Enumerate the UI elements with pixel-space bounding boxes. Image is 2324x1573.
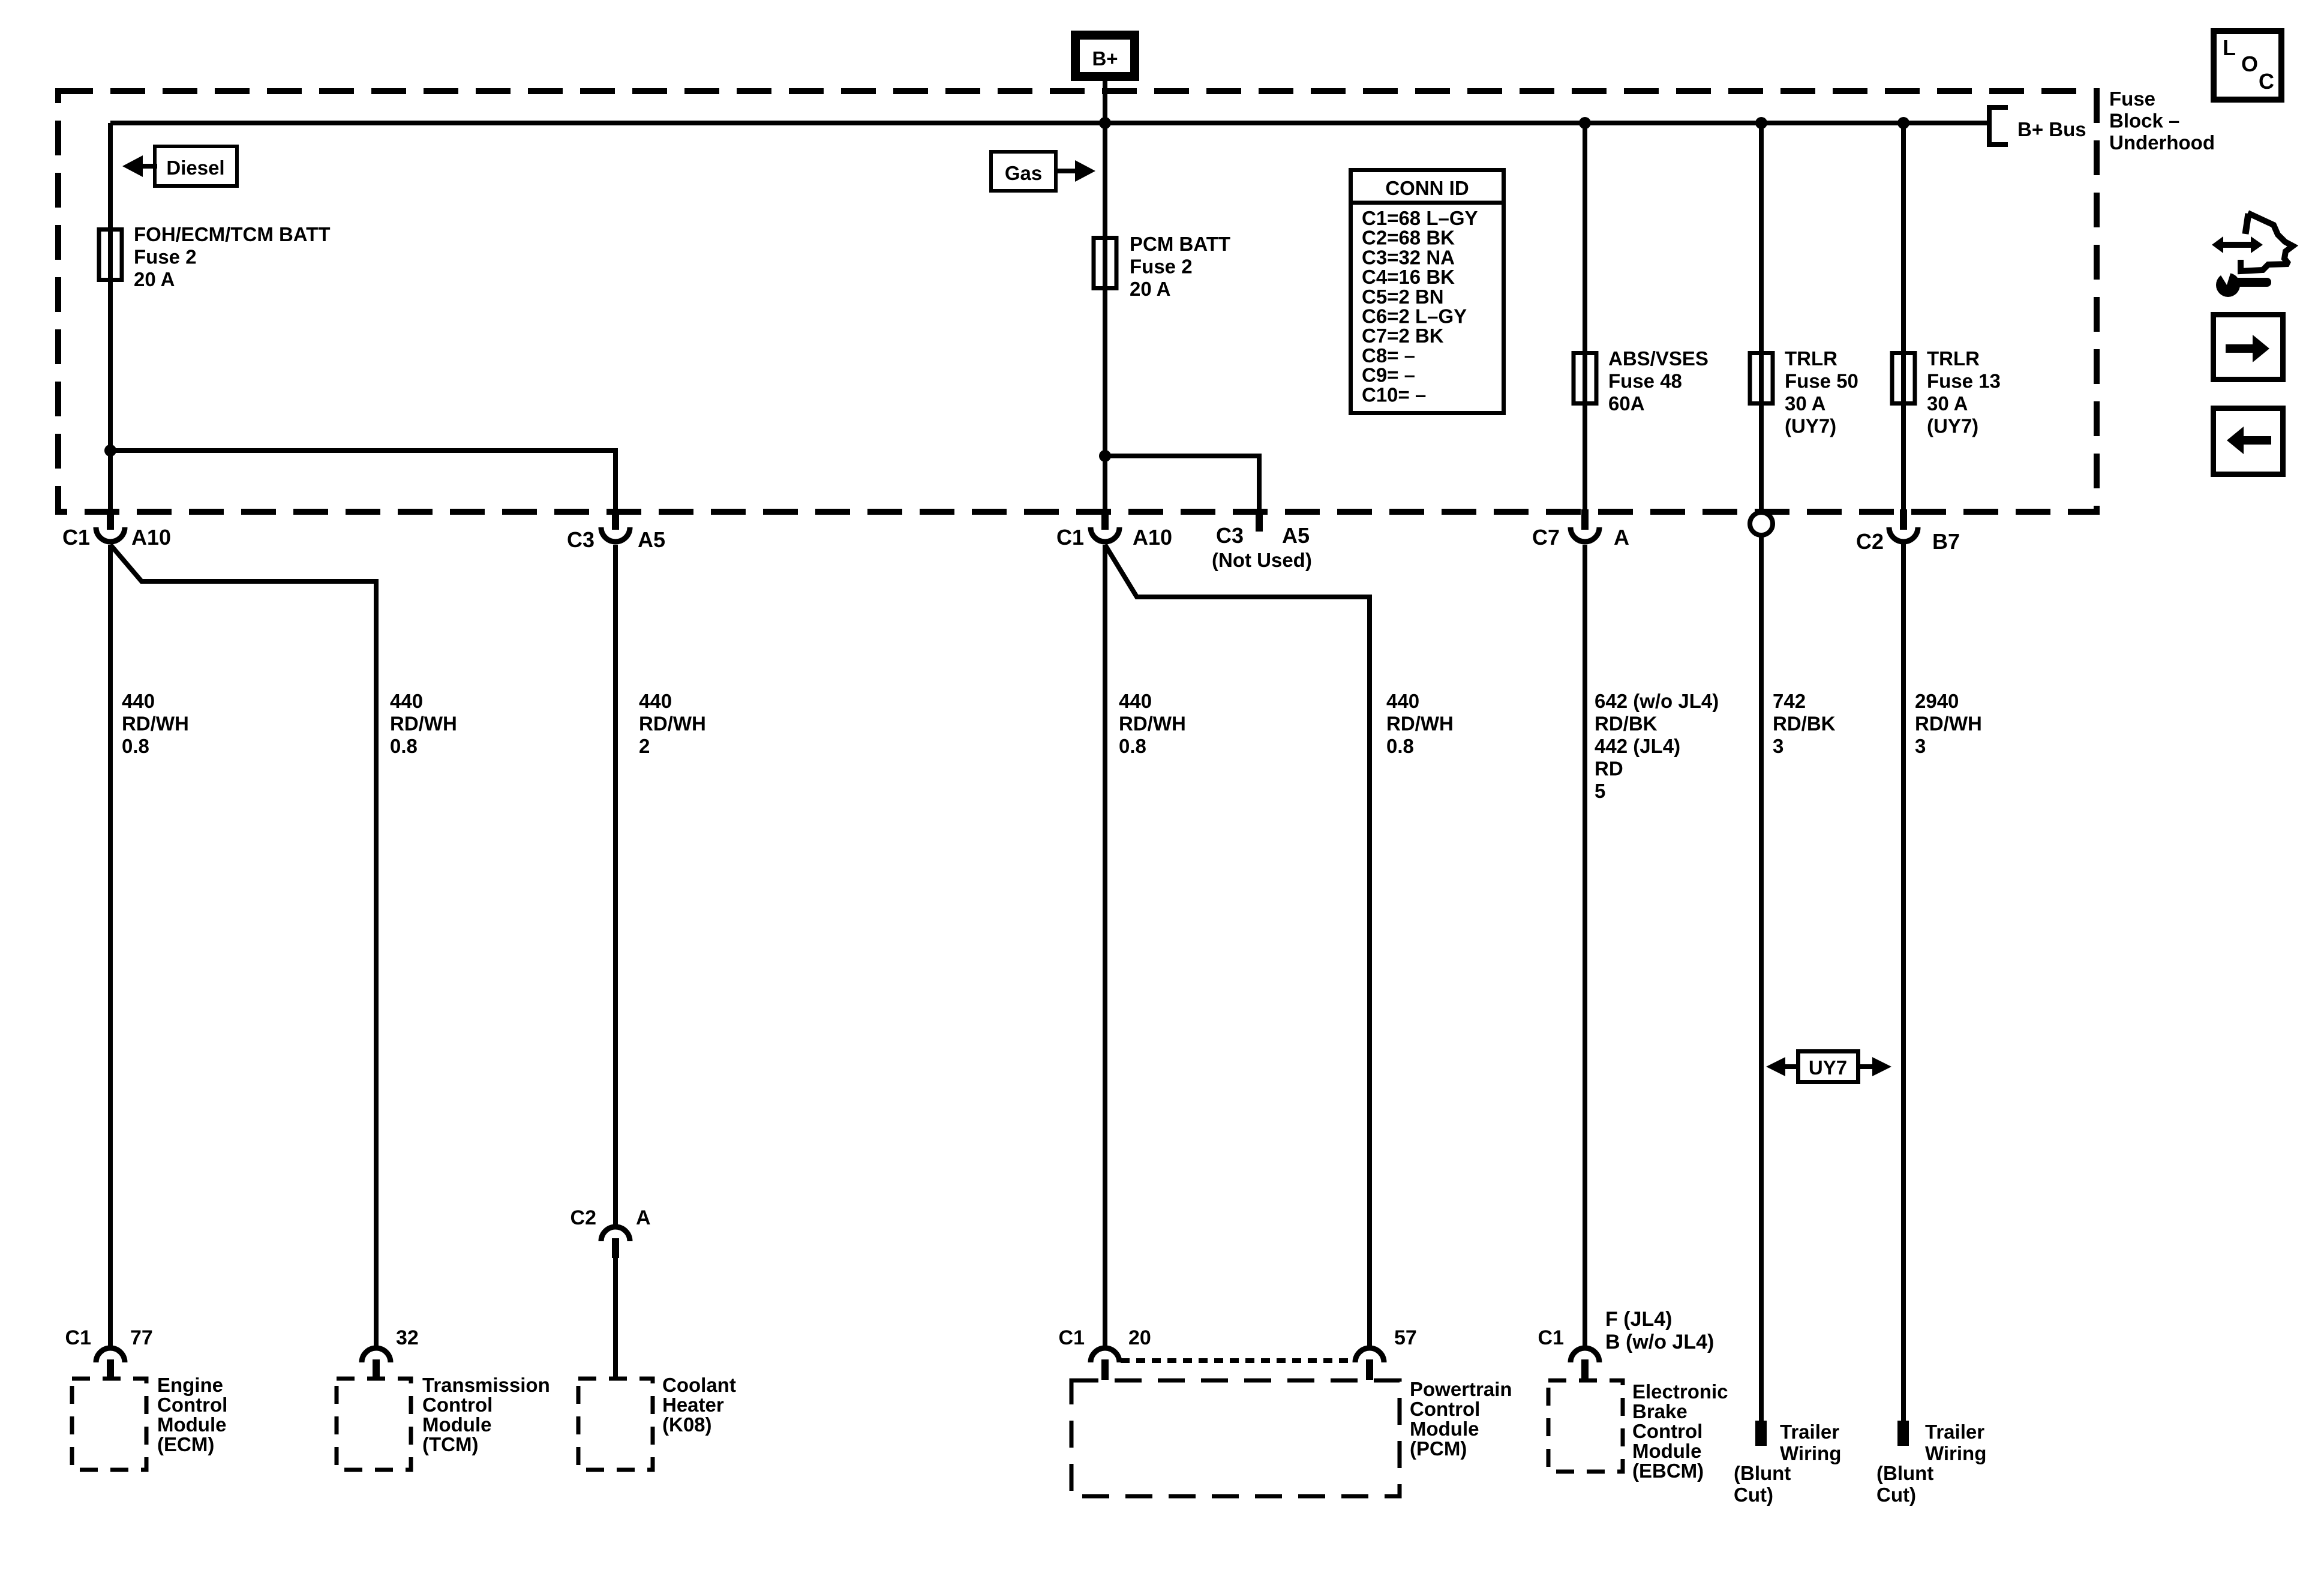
svg-text:Fuse 2: Fuse 2 [134, 246, 197, 268]
svg-text:Block –: Block – [2109, 110, 2179, 132]
svg-text:C2: C2 [571, 1206, 596, 1229]
svg-text:C9= –: C9= – [1362, 364, 1415, 386]
svg-text:440: 440 [639, 690, 672, 712]
svg-text:Module: Module [422, 1413, 491, 1436]
svg-text:3: 3 [1773, 735, 1783, 757]
svg-text:A10: A10 [1133, 525, 1172, 550]
svg-text:Trailer: Trailer [1780, 1421, 1839, 1443]
svg-text:A5: A5 [1282, 523, 1310, 548]
svg-text:RD/WH: RD/WH [1119, 713, 1186, 735]
svg-text:(EBCM): (EBCM) [1632, 1460, 1704, 1482]
svg-text:Fuse 50: Fuse 50 [1785, 370, 1858, 392]
svg-text:A: A [1614, 525, 1629, 550]
svg-text:77: 77 [130, 1326, 153, 1349]
svg-text:RD/WH: RD/WH [390, 713, 457, 735]
svg-text:F (JL4): F (JL4) [1605, 1308, 1672, 1331]
svg-text:Fuse 2: Fuse 2 [1130, 256, 1193, 278]
svg-text:Coolant: Coolant [662, 1374, 736, 1396]
svg-text:CONN ID: CONN ID [1385, 177, 1469, 199]
svg-text:Fuse 48: Fuse 48 [1608, 370, 1682, 392]
svg-text:Control: Control [1632, 1420, 1703, 1442]
svg-text:57: 57 [1394, 1326, 1417, 1349]
svg-text:UY7: UY7 [1809, 1056, 1847, 1079]
svg-text:30 A: 30 A [1927, 392, 1968, 415]
svg-text:B7: B7 [1932, 529, 1960, 554]
svg-text:Underhood: Underhood [2109, 131, 2215, 154]
svg-text:0.8: 0.8 [122, 735, 149, 757]
svg-text:C1: C1 [65, 1326, 91, 1349]
svg-text:3: 3 [1915, 735, 1926, 757]
svg-text:(PCM): (PCM) [1410, 1437, 1467, 1460]
svg-text:60A: 60A [1608, 392, 1645, 415]
svg-text:(Not Used): (Not Used) [1212, 549, 1312, 571]
svg-text:Powertrain: Powertrain [1410, 1378, 1512, 1400]
svg-text:B+ Bus: B+ Bus [2017, 118, 2086, 140]
svg-text:Brake: Brake [1632, 1400, 1688, 1422]
svg-text:20: 20 [1128, 1326, 1151, 1349]
svg-text:442 (JL4): 442 (JL4) [1595, 735, 1680, 757]
svg-text:RD/WH: RD/WH [1915, 713, 1982, 735]
svg-text:Trailer: Trailer [1925, 1421, 1984, 1443]
svg-text:Control: Control [1410, 1398, 1480, 1420]
svg-text:0.8: 0.8 [390, 735, 418, 757]
svg-text:Control: Control [422, 1394, 493, 1416]
svg-text:Cut): Cut) [1734, 1484, 1773, 1506]
svg-text:(K08): (K08) [662, 1413, 712, 1436]
svg-text:20 A: 20 A [134, 268, 175, 290]
svg-text:(TCM): (TCM) [422, 1433, 478, 1455]
svg-text:RD/BK: RD/BK [1773, 713, 1836, 735]
svg-text:440: 440 [1119, 690, 1152, 712]
svg-text:C1: C1 [1056, 525, 1084, 550]
svg-text:Fuse 13: Fuse 13 [1927, 370, 2001, 392]
svg-text:(ECM): (ECM) [157, 1433, 214, 1455]
svg-text:C6=2 L–GY: C6=2 L–GY [1362, 305, 1467, 328]
svg-text:A: A [636, 1206, 651, 1229]
svg-text:B+: B+ [1092, 47, 1118, 70]
svg-text:L: L [2223, 35, 2236, 60]
svg-text:C3: C3 [1216, 523, 1244, 548]
svg-text:Module: Module [1632, 1440, 1701, 1462]
svg-text:RD: RD [1595, 758, 1623, 780]
svg-text:C1: C1 [1538, 1326, 1564, 1349]
svg-text:FOH/ECM/TCM BATT: FOH/ECM/TCM BATT [134, 223, 331, 245]
svg-text:Control: Control [157, 1394, 227, 1416]
svg-text:C2=68 BK: C2=68 BK [1362, 227, 1455, 249]
svg-text:C1: C1 [1059, 1326, 1085, 1349]
svg-text:(Blunt: (Blunt [1734, 1462, 1791, 1484]
svg-text:RD/WH: RD/WH [122, 713, 189, 735]
svg-text:Wiring: Wiring [1925, 1442, 1986, 1464]
svg-text:C4=16 BK: C4=16 BK [1362, 266, 1455, 288]
svg-text:0.8: 0.8 [1386, 735, 1414, 757]
svg-text:C3: C3 [567, 527, 594, 552]
svg-text:(UY7): (UY7) [1785, 415, 1836, 437]
svg-text:20 A: 20 A [1130, 278, 1170, 300]
svg-text:ABS/VSES: ABS/VSES [1608, 347, 1709, 370]
svg-text:Module: Module [157, 1413, 226, 1436]
svg-text:Transmission: Transmission [422, 1374, 550, 1396]
svg-text:Wiring: Wiring [1780, 1442, 1841, 1464]
svg-text:742: 742 [1773, 690, 1806, 712]
svg-text:(Blunt: (Blunt [1876, 1462, 1933, 1484]
svg-text:440: 440 [122, 690, 155, 712]
svg-text:PCM BATT: PCM BATT [1130, 233, 1230, 255]
svg-text:32: 32 [396, 1326, 419, 1349]
svg-text:C1=68 L–GY: C1=68 L–GY [1362, 207, 1478, 229]
svg-text:C10= –: C10= – [1362, 383, 1426, 406]
svg-text:O: O [2241, 52, 2258, 76]
svg-text:5: 5 [1595, 780, 1605, 802]
svg-text:RD/BK: RD/BK [1595, 713, 1658, 735]
svg-text:2: 2 [639, 735, 650, 757]
svg-text:440: 440 [390, 690, 423, 712]
svg-text:Fuse: Fuse [2109, 88, 2155, 110]
svg-text:C8= –: C8= – [1362, 344, 1415, 367]
svg-text:2940: 2940 [1915, 690, 1959, 712]
svg-text:C5=2 BN: C5=2 BN [1362, 286, 1444, 308]
svg-text:Engine: Engine [157, 1374, 223, 1396]
svg-text:C: C [2259, 69, 2274, 94]
svg-text:Heater: Heater [662, 1394, 724, 1416]
svg-text:B (w/o JL4): B (w/o JL4) [1605, 1331, 1714, 1353]
svg-text:A5: A5 [638, 527, 665, 552]
svg-text:Cut): Cut) [1876, 1484, 1916, 1506]
svg-text:30 A: 30 A [1785, 392, 1825, 415]
svg-text:C7: C7 [1532, 525, 1560, 550]
svg-text:C2: C2 [1856, 529, 1884, 554]
svg-text:C3=32 NA: C3=32 NA [1362, 246, 1455, 268]
svg-text:(UY7): (UY7) [1927, 415, 1978, 437]
svg-text:C1: C1 [62, 525, 90, 550]
svg-text:TRLR: TRLR [1927, 347, 1980, 370]
svg-text:Electronic: Electronic [1632, 1380, 1728, 1403]
svg-text:TRLR: TRLR [1785, 347, 1837, 370]
svg-text:440: 440 [1386, 690, 1419, 712]
svg-text:642 (w/o JL4): 642 (w/o JL4) [1595, 690, 1719, 712]
svg-text:Diesel: Diesel [166, 157, 224, 179]
svg-text:RD/WH: RD/WH [1386, 713, 1454, 735]
svg-text:RD/WH: RD/WH [639, 713, 706, 735]
svg-text:A10: A10 [131, 525, 171, 550]
svg-text:C7=2 BK: C7=2 BK [1362, 325, 1444, 347]
svg-text:Module: Module [1410, 1418, 1479, 1440]
svg-text:0.8: 0.8 [1119, 735, 1146, 757]
svg-text:Gas: Gas [1005, 162, 1042, 184]
